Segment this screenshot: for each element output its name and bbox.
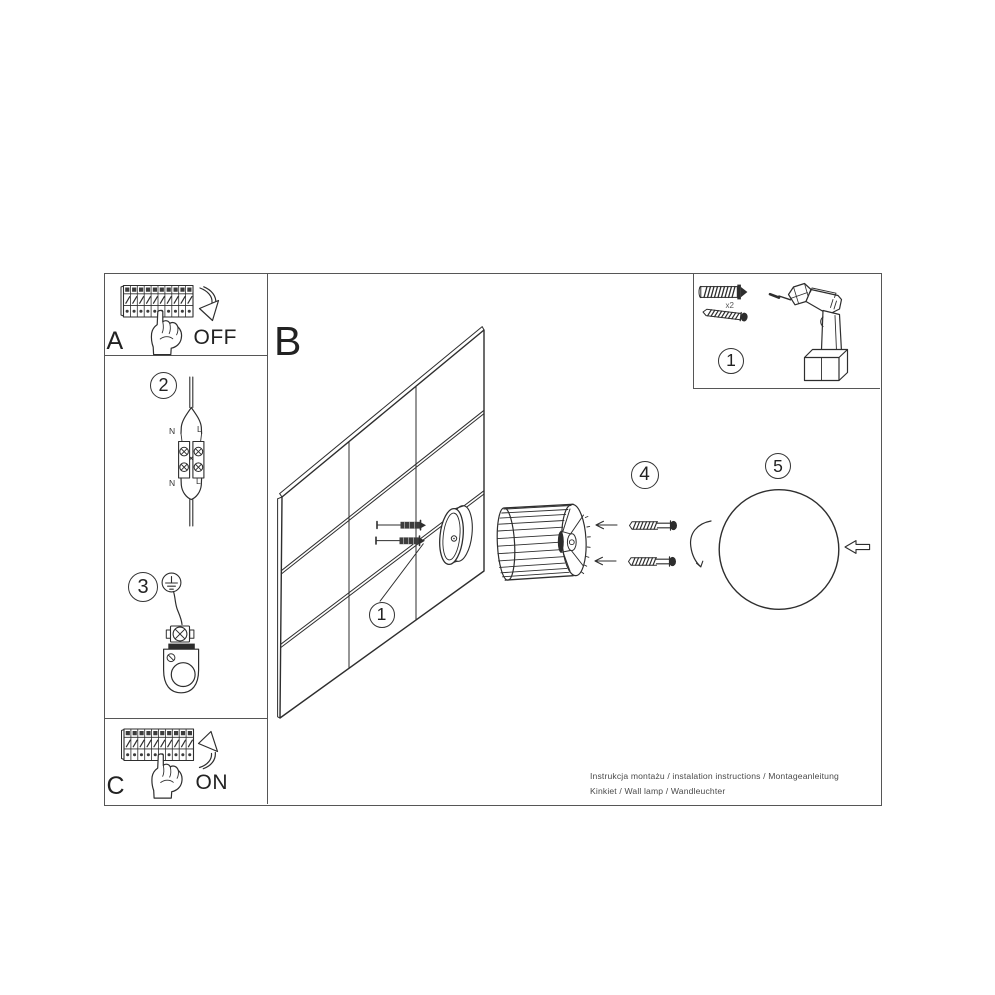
step-number: 3 [137, 576, 148, 599]
step-number: 5 [773, 456, 783, 477]
breaker-panel-on-icon [122, 729, 194, 798]
step-badge-screws: 4 [631, 461, 659, 489]
push-arrow-icon [845, 541, 870, 554]
screw-arrow-top-icon [596, 521, 677, 530]
step-number: 4 [639, 464, 650, 486]
on-label: ON [196, 771, 229, 795]
wall-plug-icon [699, 285, 747, 300]
wire-label-n-bottom: N [169, 478, 175, 488]
step-badge-tools: 1 [718, 348, 744, 374]
step-number: 2 [158, 375, 168, 396]
mounting-ring-icon [437, 504, 475, 565]
glass-globe-icon [719, 490, 839, 610]
instruction-sheet: A OFF B C ON 2 3 1 4 5 1 N L N L x2 Inst… [0, 0, 995, 995]
off-label: OFF [194, 326, 238, 350]
screw-icon [702, 308, 748, 322]
lamp-base-icon [164, 592, 199, 693]
wire-label-l-top: L [197, 424, 202, 434]
wall-anchor-screws-icon [376, 520, 426, 545]
cable-terminal-block-icon [179, 377, 204, 526]
rotate-arrow-icon [691, 521, 711, 567]
footer-product-line: Kinkiet / Wall lamp / Wandleuchter [590, 786, 725, 796]
step-number: 1 [726, 350, 736, 371]
wire-label-n-top: N [169, 426, 175, 436]
step-badge-wall: 1 [369, 602, 395, 628]
leader-line [380, 544, 424, 602]
wire-label-l-bottom: L [196, 476, 201, 486]
breaker-panel-off-icon [121, 286, 193, 355]
anchor-quantity-label: x2 [726, 301, 734, 310]
section-c-letter: C [107, 772, 125, 801]
step-badge-shade: 5 [765, 453, 791, 479]
diagram-art [0, 0, 995, 995]
lamp-body-icon [496, 504, 591, 581]
step-badge-ground: 3 [128, 572, 158, 602]
step-badge-wiring: 2 [150, 372, 177, 399]
step-number: 1 [377, 604, 387, 625]
section-b-letter: B [274, 318, 301, 365]
drill-icon [770, 284, 848, 381]
ground-symbol-icon [162, 573, 181, 592]
footer-instructions-line: Instrukcja montażu / instalation instruc… [590, 771, 839, 781]
arrow-up-icon [199, 732, 218, 769]
screw-arrow-bottom-icon [595, 557, 676, 566]
arrow-down-icon [200, 287, 219, 321]
section-a-letter: A [107, 327, 124, 356]
